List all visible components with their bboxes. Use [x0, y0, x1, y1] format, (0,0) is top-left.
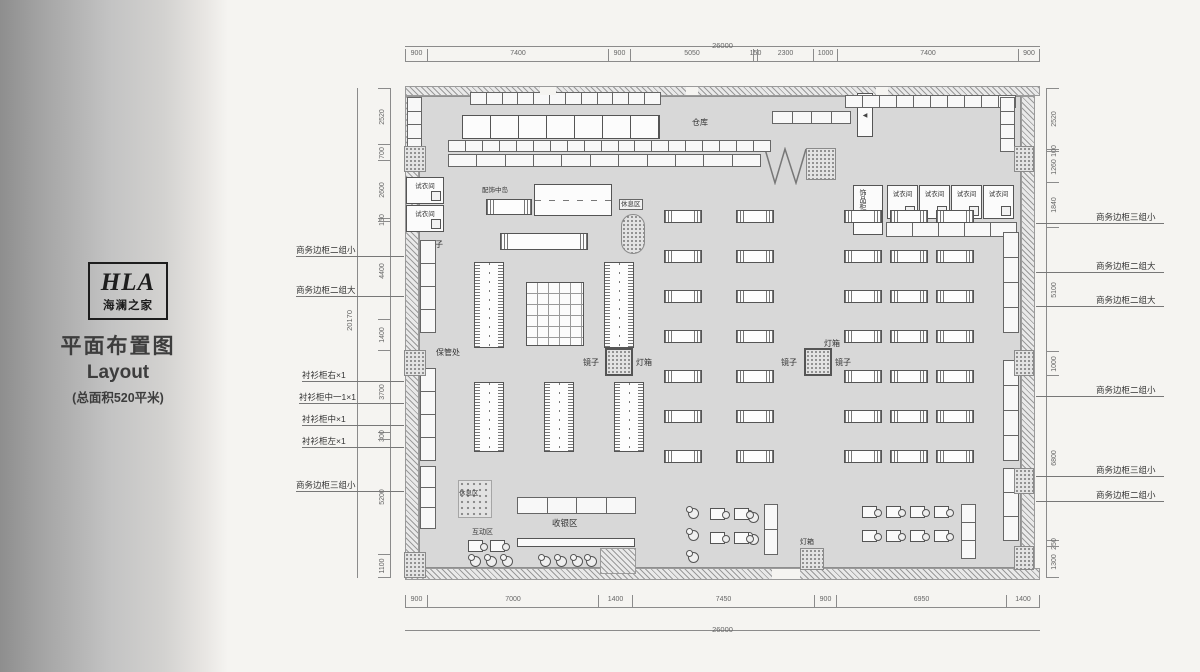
shelf-row [886, 222, 1016, 237]
clothing-rack [844, 330, 882, 343]
entrance-door-icon [764, 147, 808, 185]
clothing-rack [844, 210, 882, 223]
lightbox-label: 灯箱 [636, 358, 652, 367]
mannequin-icon [586, 556, 597, 567]
clothing-rack [890, 450, 928, 463]
dim-label: 1300 [1051, 554, 1058, 570]
mannequin-icon [502, 556, 513, 567]
dim-label: 2520 [379, 109, 386, 125]
wall-label-right: 商务边柜二组大 [1036, 294, 1164, 307]
shelf-row [448, 140, 770, 152]
entrance-arrow-icon: ◀ [863, 113, 868, 119]
clothing-rack [664, 290, 702, 303]
dim-label: 900 [411, 596, 423, 603]
mannequin-icon [572, 556, 583, 567]
clothing-rack [844, 250, 882, 263]
clothing-rack [936, 330, 974, 343]
mirror-label: 镜子 [781, 358, 797, 367]
dim-label: 900 [1023, 50, 1035, 57]
clothing-rack [664, 410, 702, 423]
clothing-rack [736, 250, 774, 263]
mirror-column [804, 348, 832, 376]
clothing-rack [844, 410, 882, 423]
interactive-label: 互动区 [472, 528, 493, 537]
clothing-rack [736, 410, 774, 423]
column [1014, 546, 1034, 570]
rail-island [474, 262, 504, 348]
warehouse-counter [462, 115, 660, 139]
clothing-rack [936, 210, 974, 223]
table-with-stool [886, 506, 901, 518]
dim-label: 2300 [778, 50, 794, 57]
accessory-island-label: 配饰中岛 [482, 186, 508, 195]
mannequin-icon [540, 556, 551, 567]
display-table [526, 282, 584, 346]
clothing-rack [890, 410, 928, 423]
clothing-rack [936, 370, 974, 383]
clothing-rack [936, 410, 974, 423]
wall-label-left: 商务边柜二组小 [296, 244, 404, 257]
dimension-chain: 90070001400745090069501400 [405, 595, 1040, 608]
dim-label: 7450 [716, 596, 732, 603]
shelf-row [517, 497, 635, 514]
wall-cabinet [420, 240, 436, 332]
mirror-column [605, 348, 633, 376]
dim-label: 7400 [920, 50, 936, 57]
fitting-room-label: 试衣间 [407, 208, 443, 218]
mannequin-icon [688, 552, 699, 563]
wall-label-left: 衬衫柜右×1 [302, 369, 404, 382]
wall-bottom [405, 568, 1040, 580]
clothing-rack [936, 290, 974, 303]
wall-opening [686, 87, 698, 95]
dim-label: 900 [820, 596, 832, 603]
mannequin-icon [688, 530, 699, 541]
dimension-chain: 2520700260015044001400370030052001100 [378, 88, 391, 578]
dim-label: 1260 [1051, 159, 1058, 175]
storage-label: 保管处 [436, 348, 460, 357]
wall-label-left: 衬衫柜中×1 [302, 413, 404, 426]
clothing-rack [890, 250, 928, 263]
clothing-rack [890, 370, 928, 383]
entry-steps [600, 548, 636, 574]
column-rest [621, 214, 645, 254]
clothing-rack [936, 450, 974, 463]
dim-label: 1400 [608, 596, 624, 603]
wall-label-left: 商务边柜三组小 [296, 479, 404, 492]
table-with-stool [710, 508, 725, 520]
wall-cabinet [961, 504, 976, 558]
dimension-total-left: 20170 [345, 310, 354, 331]
dim-label: 5050 [684, 50, 700, 57]
fitting-room: 试衣间 [406, 205, 444, 232]
shelf-row [470, 92, 660, 105]
dim-label: 26000 [712, 625, 733, 634]
table-with-stool [734, 532, 749, 544]
fitting-room-label: 试衣间 [407, 180, 443, 190]
dim-label: 1000 [818, 50, 834, 57]
clothing-rack [936, 250, 974, 263]
rest-area-label: 休息区 [619, 199, 643, 210]
wall-cabinet [420, 368, 436, 460]
dim-label: 7400 [510, 50, 526, 57]
rest-area-label: 休息区 [459, 489, 479, 498]
dimension-chain: 2520100126018405100100068002501300 [1046, 88, 1059, 578]
mannequin-icon [486, 556, 497, 567]
table-with-stool [934, 506, 949, 518]
clothing-rack [486, 199, 532, 215]
clothing-rack [664, 210, 702, 223]
fitting-room: 试衣间 [983, 185, 1014, 219]
wall-label-right: 商务边柜三组小 [1036, 464, 1164, 477]
wall-label-left: 衬衫柜中一1×1 [299, 391, 404, 404]
dim-label: 1100 [379, 558, 386, 573]
fitting-room: 试衣间 [406, 177, 444, 204]
table-with-stool [886, 530, 901, 542]
dim-label: 2520 [1051, 111, 1058, 127]
column [800, 548, 824, 570]
dim-label: 6950 [914, 596, 930, 603]
clothing-rack [844, 370, 882, 383]
warehouse-label: 仓库 [692, 118, 708, 127]
wall-opening [772, 569, 800, 579]
table-with-stool [468, 540, 483, 552]
shelf-row [845, 95, 1015, 108]
clothing-rack [664, 450, 702, 463]
dim-label: 1400 [379, 327, 386, 343]
column [404, 350, 426, 376]
rail-island [474, 382, 504, 452]
wall-cabinet [1003, 232, 1019, 332]
center-island-long [534, 184, 612, 216]
dimension-chain: 90074009005050150230010007400900 [405, 49, 1040, 62]
clothing-rack [890, 290, 928, 303]
dimension-total-left-line [357, 88, 359, 578]
wall-label-right: 商务边柜三组小 [1036, 211, 1164, 224]
lightbox-label: 灯箱 [824, 339, 840, 348]
clothing-rack [664, 250, 702, 263]
clothing-rack [500, 233, 588, 250]
fitting-room-label: 试衣间 [984, 188, 1013, 198]
wall-label-left: 商务边柜二组大 [296, 284, 404, 297]
clothing-rack [736, 330, 774, 343]
wall-opening [876, 87, 888, 95]
clothing-rack [736, 450, 774, 463]
wall-label-left: 衬衫柜左×1 [302, 435, 404, 448]
wall-cabinet [407, 97, 422, 151]
column [1014, 468, 1034, 494]
fitting-room-label: 试衣间 [888, 188, 917, 198]
clothing-rack [844, 450, 882, 463]
column [806, 148, 836, 180]
wall-cabinet [1000, 97, 1015, 151]
dimension-total-top: 26000 [405, 35, 1040, 47]
rest-area-zone [458, 480, 492, 518]
dim-label: 1400 [1015, 596, 1031, 603]
column [1014, 146, 1034, 172]
clothing-rack [844, 290, 882, 303]
table-with-stool [910, 530, 925, 542]
mannequin-icon [556, 556, 567, 567]
clothing-rack [664, 370, 702, 383]
wall-label-right: 商务边柜二组大 [1036, 260, 1164, 273]
column [404, 146, 426, 172]
rail-island [544, 382, 574, 452]
clothing-rack [890, 330, 928, 343]
wall-label-right: 商务边柜二组小 [1036, 489, 1164, 502]
dim-label: 700 [379, 147, 386, 159]
wall-cabinet [420, 466, 436, 528]
clothing-rack [890, 210, 928, 223]
screenshot-root: HLA 海澜之家 平面布置图 Layout (总面积520平米) ◀ 试衣间 试… [0, 0, 1200, 672]
table-with-stool [710, 532, 725, 544]
fitting-room-label: 试衣间 [920, 188, 949, 198]
column [1014, 350, 1034, 376]
dim-label: 7000 [505, 596, 521, 603]
wall-cabinet [764, 504, 778, 554]
clothing-rack [736, 370, 774, 383]
floor-plan: ◀ 试衣间 试衣间 试衣间 试衣间 试衣间 试衣间 仓库 灯箱 配饰中岛 休息区… [0, 0, 1200, 672]
rail-island [604, 262, 634, 348]
mannequin-icon [688, 508, 699, 519]
fitting-room-label: 试衣间 [952, 188, 981, 198]
cashier-label: 收银区 [552, 519, 578, 528]
clothing-rack [736, 210, 774, 223]
dim-label: 900 [614, 50, 626, 57]
table-with-stool [490, 540, 505, 552]
rail-island [614, 382, 644, 452]
dim-label: 2600 [379, 182, 386, 198]
wall-label-right: 商务边柜二组小 [1036, 384, 1164, 397]
lightbox-label: 灯箱 [800, 538, 814, 547]
shelf-row [772, 111, 850, 124]
mirror-label: 镜子 [835, 358, 851, 367]
dim-label: 900 [411, 50, 423, 57]
clothing-rack [664, 330, 702, 343]
shelf-row [448, 154, 760, 167]
column [404, 552, 426, 578]
mannequin-icon [470, 556, 481, 567]
dim-label: 1000 [1051, 356, 1058, 372]
wall-opening [540, 87, 556, 95]
mirror-label: 镜子 [583, 358, 599, 367]
table-with-stool [862, 530, 877, 542]
table-with-stool [862, 506, 877, 518]
dim-label: 4400 [379, 263, 386, 279]
cashier-counter [517, 538, 635, 547]
table-with-stool [934, 530, 949, 542]
dimension-total-bottom: 26000 [405, 619, 1040, 631]
clothing-rack [736, 290, 774, 303]
table-with-stool [910, 506, 925, 518]
table-with-stool [734, 508, 749, 520]
